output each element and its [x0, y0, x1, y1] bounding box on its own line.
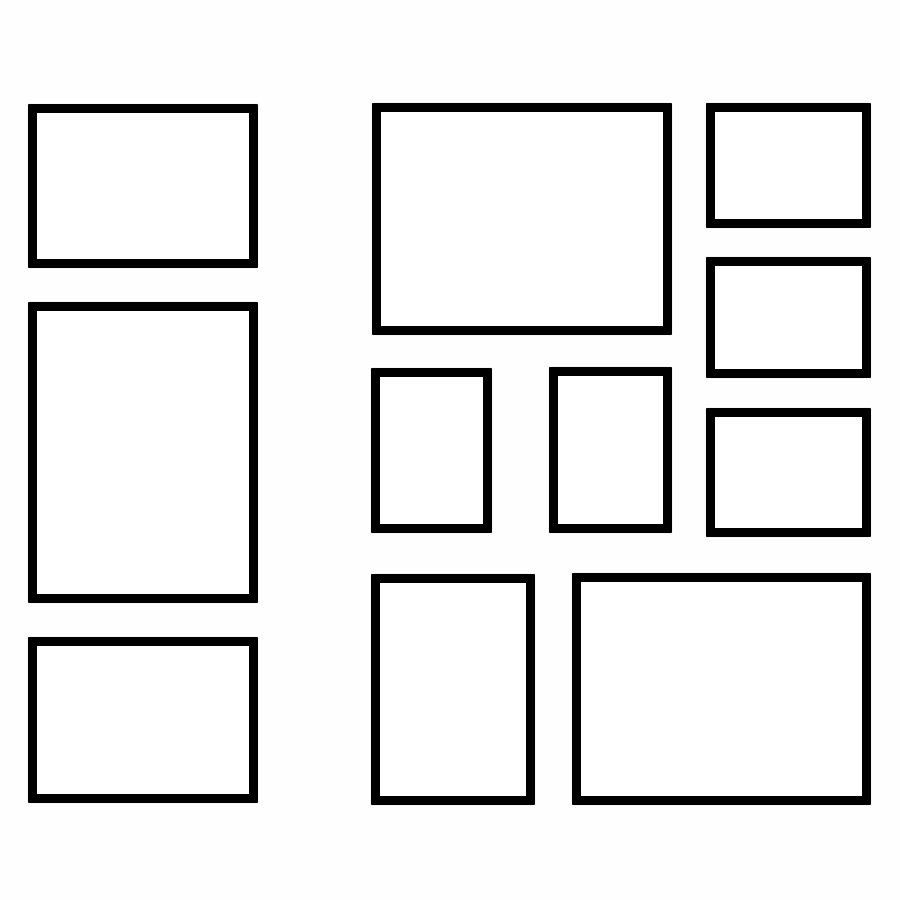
frame-bottom-center — [371, 574, 535, 805]
frame-center-small-right — [549, 367, 672, 533]
frame-center-top — [372, 103, 672, 335]
frame-right-bottom — [706, 408, 871, 537]
frame-center-small-left — [371, 368, 492, 533]
frame-left-bottom — [28, 637, 258, 803]
frame-left-top — [28, 104, 258, 268]
frame-left-middle — [28, 302, 258, 603]
gallery-wall-layout — [0, 0, 900, 900]
frame-bottom-right — [572, 573, 871, 805]
frame-right-middle — [706, 257, 871, 378]
frame-right-top — [706, 103, 871, 228]
